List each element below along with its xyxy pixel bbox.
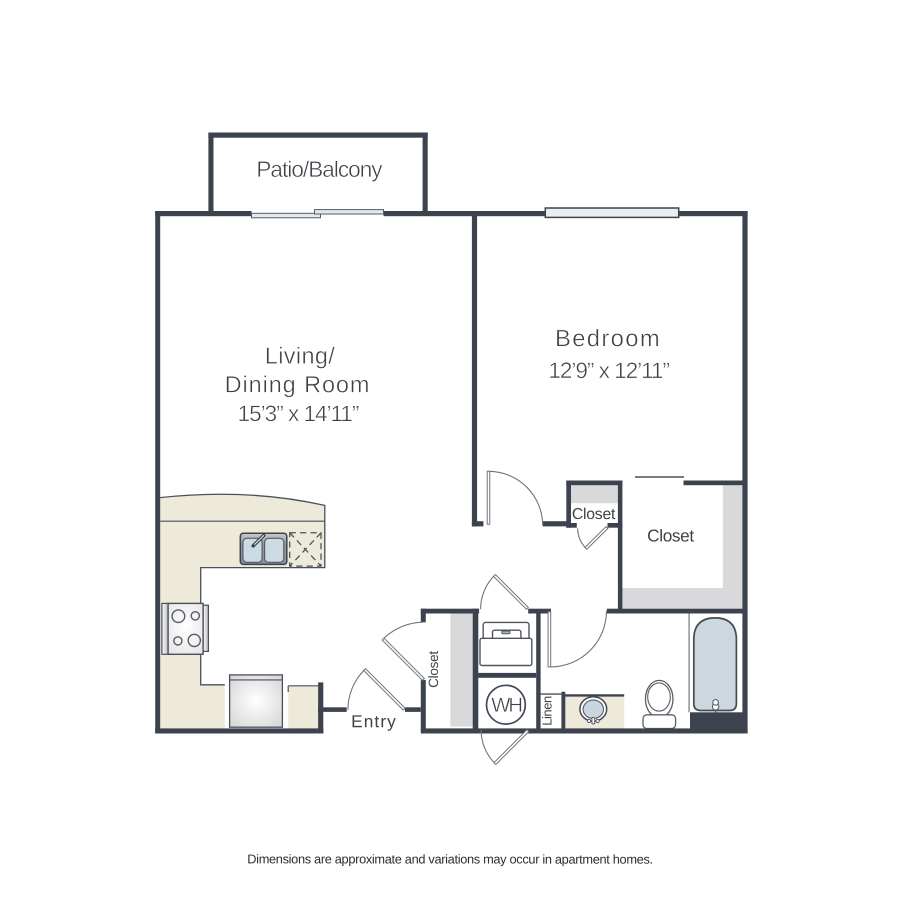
svg-text:Entry: Entry <box>351 711 397 731</box>
svg-text:Closet: Closet <box>426 651 441 688</box>
svg-text:Closet: Closet <box>572 506 616 523</box>
svg-text:Closet: Closet <box>647 525 694 545</box>
svg-text:Dining Room: Dining Room <box>225 371 371 397</box>
svg-text:15’3” x 14’11”: 15’3” x 14’11” <box>238 401 359 426</box>
svg-text:Bedroom: Bedroom <box>555 325 661 352</box>
svg-text:Living/: Living/ <box>265 343 336 369</box>
svg-text:12’9” x 12’11”: 12’9” x 12’11” <box>548 358 669 383</box>
svg-text:Patio/Balcony: Patio/Balcony <box>256 157 383 182</box>
svg-text:Linen: Linen <box>539 696 554 726</box>
svg-text:Dimensions are approximate and: Dimensions are approximate and variation… <box>247 851 652 866</box>
svg-text:WH: WH <box>491 695 521 717</box>
